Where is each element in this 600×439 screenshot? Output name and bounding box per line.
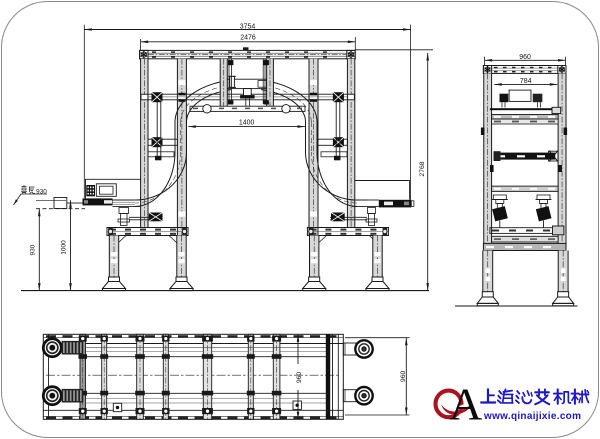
svg-text:960: 960 [519,54,531,61]
svg-text:960: 960 [296,372,303,384]
svg-text:1400: 1400 [239,119,255,126]
svg-text:1000: 1000 [61,240,68,255]
svg-text:784: 784 [520,78,532,85]
svg-text:A: A [449,378,482,429]
svg-text:960: 960 [400,371,407,383]
svg-text:www.qinaijixie.com: www.qinaijixie.com [483,411,581,422]
svg-text:3754: 3754 [240,23,256,30]
svg-text:930: 930 [30,244,37,255]
svg-text:2476: 2476 [240,34,256,41]
svg-text:2768: 2768 [419,161,426,176]
